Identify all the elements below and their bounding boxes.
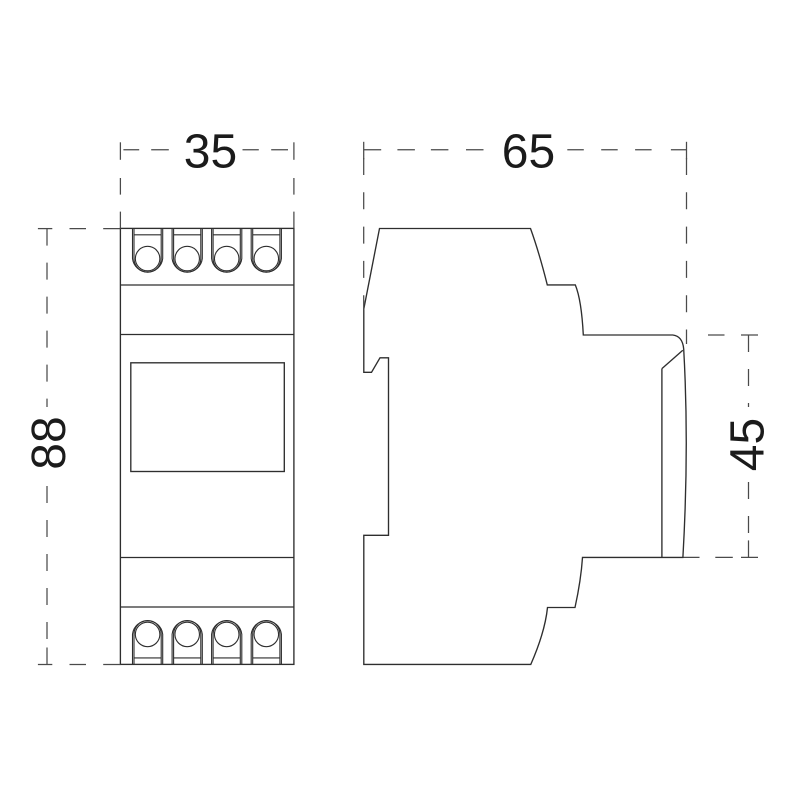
svg-text:88: 88 [23,416,76,469]
svg-text:45: 45 [722,418,775,471]
svg-text:65: 65 [502,126,555,179]
svg-text:35: 35 [184,125,237,178]
